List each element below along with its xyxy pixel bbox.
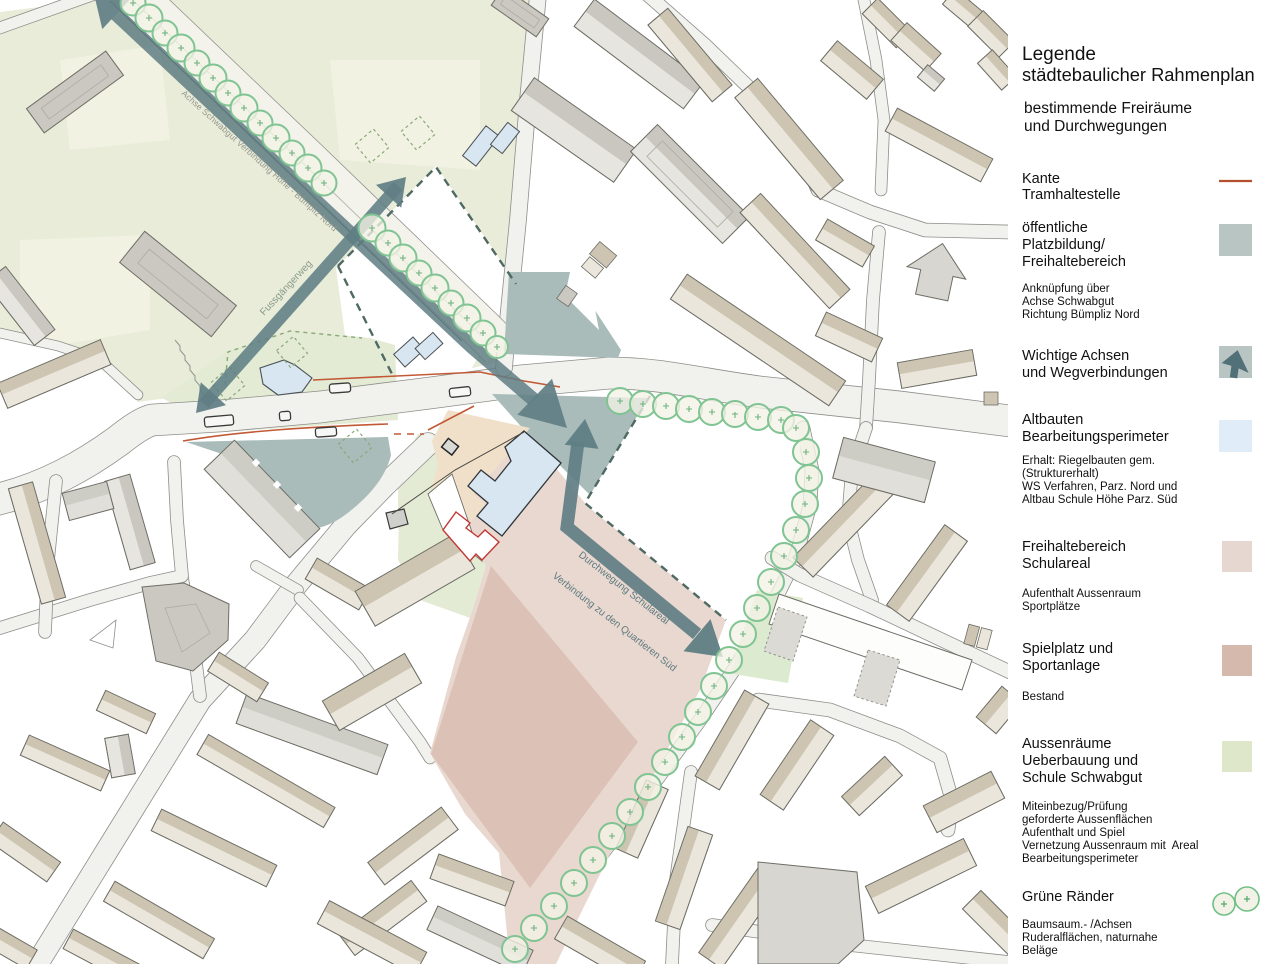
- svg-text:Grüne Ränder: Grüne Ränder: [1022, 889, 1114, 905]
- svg-text:und Wegverbindungen: und Wegverbindungen: [1022, 365, 1168, 381]
- svg-text:WS Verfahren, Parz. Nord und: WS Verfahren, Parz. Nord und: [1022, 481, 1177, 493]
- svg-text:Spielplatz und: Spielplatz und: [1022, 641, 1113, 657]
- svg-text:Aufenthalt und Spiel: Aufenthalt und Spiel: [1022, 827, 1125, 839]
- svg-text:Wichtige Achsen: Wichtige Achsen: [1022, 348, 1129, 364]
- svg-text:Baumsaum.- /Achsen: Baumsaum.- /Achsen: [1022, 919, 1132, 931]
- svg-text:Kante: Kante: [1022, 171, 1060, 187]
- svg-text:Platzbildung/: Platzbildung/: [1022, 237, 1106, 253]
- svg-text:Richtung Bümpliz Nord: Richtung Bümpliz Nord: [1022, 309, 1140, 321]
- svg-text:Vernetzung Aussenraum mit Are: Vernetzung Aussenraum mit Areal: [1022, 840, 1198, 852]
- svg-text:Aufenthalt Aussenraum: Aufenthalt Aussenraum: [1022, 588, 1141, 600]
- svg-text:öffentliche: öffentliche: [1022, 220, 1088, 236]
- svg-text:und Durchwegungen: und Durchwegungen: [1024, 118, 1167, 135]
- svg-text:Tramhaltestelle: Tramhaltestelle: [1022, 187, 1121, 203]
- svg-text:Bearbeitungsperimeter: Bearbeitungsperimeter: [1022, 429, 1169, 445]
- svg-text:Anknüpfung über: Anknüpfung über: [1022, 283, 1110, 295]
- svg-text:Freihaltebereich: Freihaltebereich: [1022, 539, 1126, 555]
- svg-text:Ruderalflächen, naturnahe: Ruderalflächen, naturnahe: [1022, 932, 1158, 944]
- svg-text:Miteinbezug/Prüfung: Miteinbezug/Prüfung: [1022, 801, 1127, 813]
- svg-text:Bestand: Bestand: [1022, 691, 1064, 703]
- svg-text:Legende: Legende: [1022, 44, 1096, 65]
- svg-text:Freihaltebereich: Freihaltebereich: [1022, 254, 1126, 270]
- svg-text:Bearbeitungsperimeter: Bearbeitungsperimeter: [1022, 853, 1139, 865]
- svg-text:Schule Schwabgut: Schule Schwabgut: [1022, 770, 1142, 786]
- svg-text:städtebaulicher Rahmenplan: städtebaulicher Rahmenplan: [1022, 64, 1255, 85]
- svg-text:Altbauten: Altbauten: [1022, 412, 1083, 428]
- svg-text:Ueberbauung und: Ueberbauung und: [1022, 753, 1138, 769]
- svg-text:Sportplätze: Sportplätze: [1022, 601, 1080, 613]
- svg-text:geforderte Aussenflächen: geforderte Aussenflächen: [1022, 814, 1152, 826]
- svg-text:Achse Schwabgut: Achse Schwabgut: [1022, 296, 1115, 308]
- svg-text:Aussenräume: Aussenräume: [1022, 736, 1111, 752]
- svg-text:Sportanlage: Sportanlage: [1022, 658, 1100, 674]
- svg-text:Beläge: Beläge: [1022, 945, 1058, 957]
- svg-text:(Strukturerhalt): (Strukturerhalt): [1022, 468, 1099, 480]
- svg-text:Erhalt: Riegelbauten gem.: Erhalt: Riegelbauten gem.: [1022, 455, 1155, 467]
- svg-text:Schulareal: Schulareal: [1022, 556, 1091, 572]
- svg-text:bestimmende Freiräume: bestimmende Freiräume: [1024, 100, 1192, 117]
- svg-text:Altbau Schule Höhe Parz. Süd: Altbau Schule Höhe Parz. Süd: [1022, 494, 1177, 506]
